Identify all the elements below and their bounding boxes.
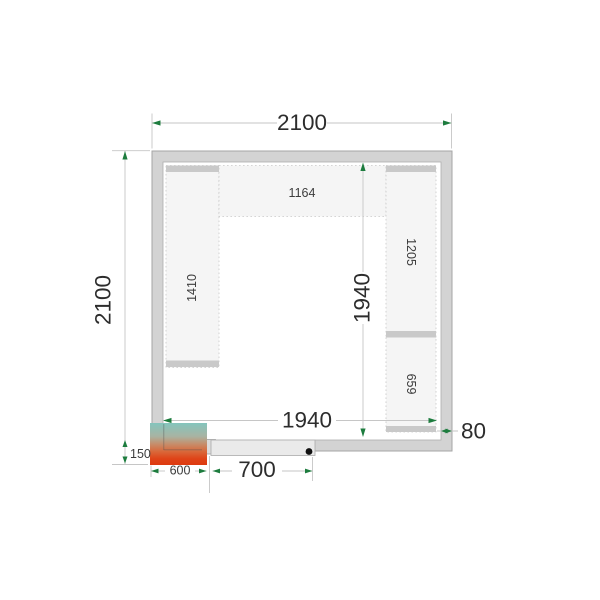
door-panel (211, 440, 315, 456)
shelf-left-bottom-cap (166, 361, 219, 368)
dim-unit-depth-label: 150 (130, 447, 151, 461)
shelf-left-top-cap (166, 166, 219, 173)
shelf-right-upper-top-cap (386, 166, 436, 173)
shelf-top-label: 1164 (289, 186, 316, 200)
dim-interior-height-label: 1940 (350, 273, 375, 323)
shelf-right-upper-bottom-cap (386, 331, 436, 338)
dim-wall-thickness-label: 80 (461, 419, 486, 444)
dim-interior-width-label: 1940 (282, 408, 332, 433)
shelf-right-upper-label: 1205 (404, 238, 418, 266)
door-hinge-dot (306, 448, 313, 455)
shelf-left-label: 1410 (185, 274, 199, 302)
dim-unit-width-label: 600 (170, 464, 191, 478)
dim-door-opening-label: 700 (238, 457, 276, 482)
floor-plan-drawing: 2100 2100 1940 1940 80 700 150 600 1164 … (0, 0, 600, 600)
floor-plan-canvas: 2100 2100 1940 1940 80 700 150 600 1164 … (0, 0, 600, 600)
shelf-right-lower-bottom-cap (386, 426, 436, 432)
dim-overall-height-label: 2100 (91, 275, 116, 325)
dim-overall-width-label: 2100 (277, 110, 327, 135)
shelf-right-lower-label: 659 (404, 374, 418, 395)
shelf-left (166, 166, 219, 368)
cooling-unit (150, 423, 207, 465)
